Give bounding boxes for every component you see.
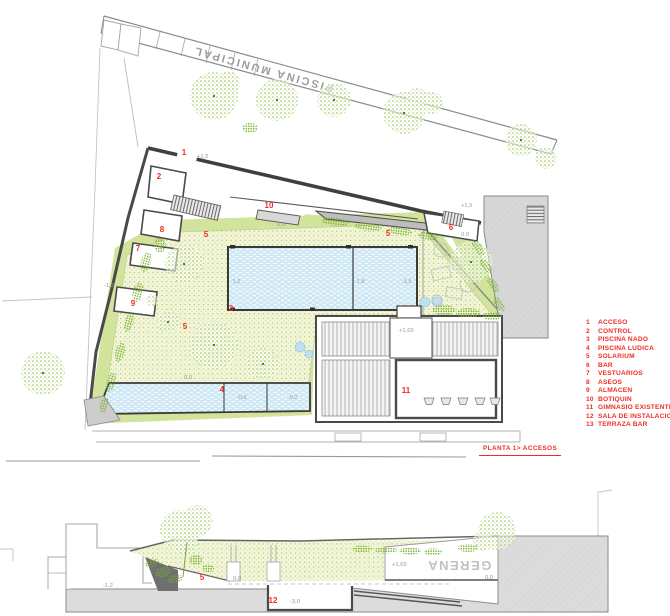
level-label: +1,5 [461,203,472,209]
legend-item: 11GIMNASIO EXISTENTE [586,404,670,413]
mark-solarium-a: 5 [204,230,209,239]
level-label: 0,0 [184,375,192,381]
entrance-gap [176,151,198,164]
mark-control: 2 [157,172,162,181]
mark-solarium-c: 5 [183,322,188,331]
level-label: -1,2 [103,583,113,589]
gym-building: +1,65 [316,306,502,422]
legend-item: 3PISCINA NADO [586,336,670,345]
mark-vestuarios: 7 [136,244,141,253]
gym-room [396,360,496,418]
legend: 1ACCESO 2CONTROL 3PISCINA NADO 4PISCINA … [586,319,670,430]
level-label: +1,5 [197,154,208,160]
east-building-stairs [527,206,544,223]
legend-item: 12SALA DE INSTALACIONES [586,413,670,422]
depth-label: -0,6 [237,395,246,401]
mark-piscina-nado: 3 [229,304,234,313]
mark-gimnasio: 11 [402,386,411,395]
level-label: 0,0 [277,222,285,228]
legend-item: 9ALMACEN [586,387,670,396]
street-trees [190,71,557,169]
level-label: -3,0 [290,599,300,605]
site-plan-svg: PISCINA MUNICIPAL [0,0,670,616]
architectural-drawing: PISCINA MUNICIPAL [0,0,670,616]
section-drawing: GERENA -1,2 5 0,0 12 -3,0 +1,65 0,0 [0,505,608,612]
mark-botiquin: 10 [265,201,274,210]
depth-label: -1,8 [402,279,411,285]
legend-item: 13TERRAZA BAR [586,421,670,430]
depth-label: -1,8 [355,279,364,285]
plan-caption: PLANTA 1> ACCESOS [479,445,561,456]
level-label: -1,2 [104,283,114,289]
main-pool: -1,2 -1,8 -1,8 [228,245,417,311]
mark-instalaciones: 12 [269,596,278,605]
legend-item: 1ACCESO [586,319,670,328]
level-label: 0,0 [233,576,241,582]
mark-acceso: 1 [182,148,187,157]
mark-solarium-b: 5 [386,229,391,238]
legend-item: 8ASEOS [586,379,670,388]
legend-item: 4PISCINA LUDICA [586,345,670,354]
mark-almacen: 9 [131,299,136,308]
left-house-profile [66,524,152,589]
depth-label: -0,2 [288,395,297,401]
mark-aseos: 8 [160,225,165,234]
level-label: 0,0 [485,575,493,581]
level-label: 0,0 [461,232,469,238]
depth-label: -1,2 [231,279,240,285]
level-label: +1,65 [392,562,407,568]
legend-item: 6BAR [586,362,670,371]
legend-item: 7VESTUARIOS [586,370,670,379]
legend-item: 5SOLARIUM [586,353,670,362]
legend-item: 10BOTIQUIN [586,396,670,405]
leisure-pool: -0,6 -0,2 [97,383,310,414]
mark-bar: 6 [449,223,454,232]
mark-solarium-section: 5 [200,573,205,582]
mark-piscina-ludica: 4 [220,385,225,394]
legend-item: 2CONTROL [586,328,670,337]
gym-level-label: +1,65 [399,328,414,334]
gerena-sign: GERENA [427,558,492,573]
plant-room [268,586,352,610]
divider-lines [6,456,466,461]
